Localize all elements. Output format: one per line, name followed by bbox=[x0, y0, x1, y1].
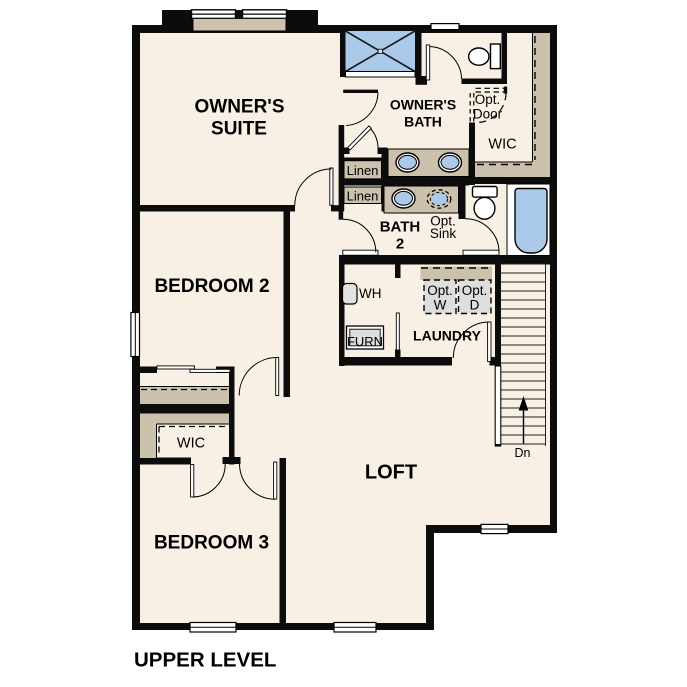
svg-text:BEDROOM 3: BEDROOM 3 bbox=[154, 533, 269, 554]
svg-text:OWNER'S: OWNER'S bbox=[390, 97, 456, 113]
svg-text:Sink: Sink bbox=[430, 226, 457, 241]
svg-text:Opt.: Opt. bbox=[427, 283, 453, 298]
svg-text:Opt.: Opt. bbox=[475, 92, 501, 107]
svg-text:BEDROOM 2: BEDROOM 2 bbox=[154, 276, 269, 297]
svg-text:WH: WH bbox=[359, 286, 382, 301]
svg-text:Dn: Dn bbox=[515, 446, 531, 460]
svg-text:Linen: Linen bbox=[347, 163, 379, 178]
svg-text:LOFT: LOFT bbox=[365, 462, 417, 484]
svg-text:FURN: FURN bbox=[347, 334, 383, 349]
svg-text:Door: Door bbox=[473, 107, 503, 122]
svg-text:WIC: WIC bbox=[177, 436, 205, 452]
svg-text:SUITE: SUITE bbox=[211, 119, 267, 140]
svg-text:OWNER'S: OWNER'S bbox=[194, 97, 284, 118]
svg-text:W: W bbox=[434, 298, 447, 313]
svg-text:2: 2 bbox=[396, 236, 404, 253]
svg-text:Linen: Linen bbox=[347, 189, 379, 204]
svg-text:D: D bbox=[470, 298, 480, 313]
svg-text:WIC: WIC bbox=[488, 137, 516, 153]
svg-text:BATH: BATH bbox=[380, 219, 421, 236]
svg-text:UPPER LEVEL: UPPER LEVEL bbox=[134, 649, 276, 672]
svg-text:LAUNDRY: LAUNDRY bbox=[413, 327, 482, 343]
svg-text:BATH: BATH bbox=[404, 114, 442, 130]
svg-text:Opt.: Opt. bbox=[462, 283, 488, 298]
